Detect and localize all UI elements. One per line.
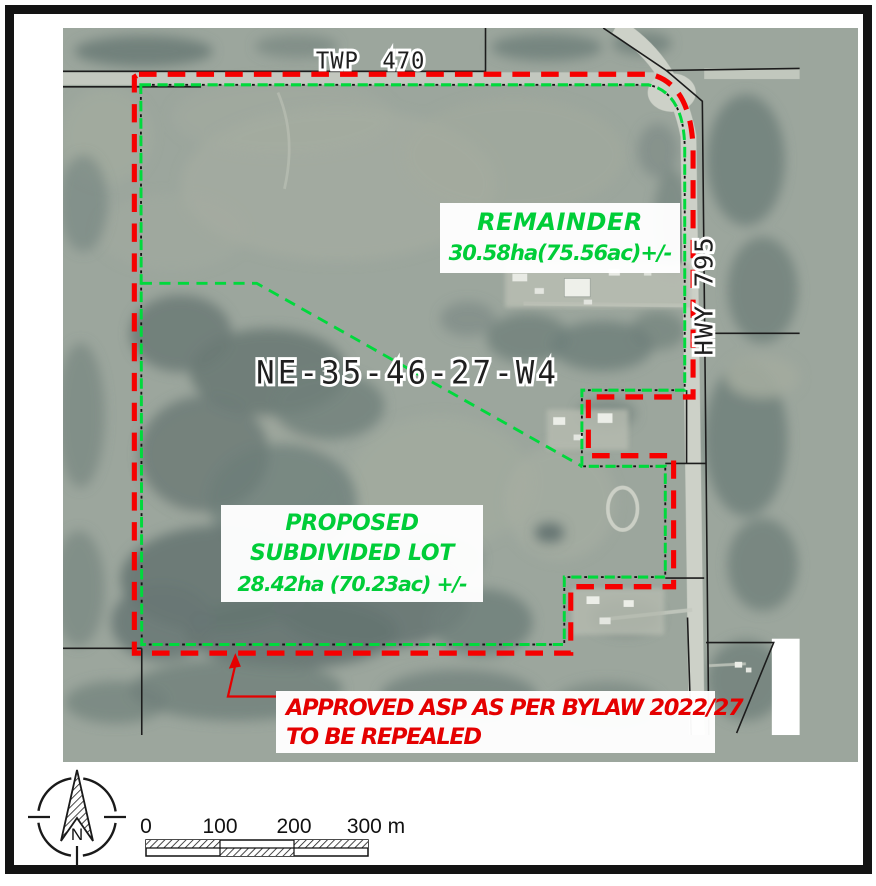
scale-seg-1 xyxy=(146,840,220,848)
scale-seg-2 xyxy=(294,840,368,848)
township-road-label: TWP 470 xyxy=(316,48,425,74)
road-intersection xyxy=(648,73,696,112)
remainder-label: REMAINDER 30.58ha(75.56ac)+/- xyxy=(440,203,680,273)
quarter-section-label: NE-35-46-27-W4 xyxy=(256,355,559,392)
scale-tick-200: 200 xyxy=(276,815,311,838)
scale-tick-100: 100 xyxy=(202,815,237,838)
scale-tick-0: 0 xyxy=(140,815,152,838)
proposed-line1: PROPOSED xyxy=(221,509,483,539)
north-arrow: N xyxy=(28,770,126,866)
scale-bar: 0 100 200 300 m xyxy=(140,815,405,856)
repeal-note: APPROVED ASP AS PER BYLAW 2022/27 TO BE … xyxy=(276,691,715,753)
proposed-area: 28.42ha (70.23ac) +/- xyxy=(221,569,483,599)
highway-label: HWY 795 xyxy=(690,236,719,356)
legend-strip: N 0 100 200 300 m xyxy=(13,762,583,866)
photo-void-corner xyxy=(772,639,800,735)
plan-drawing: TWP 470 NE-35-46-27-W4 HWY 795 xyxy=(63,28,858,762)
repeal-note-line1: APPROVED ASP AS PER BYLAW 2022/27 xyxy=(286,694,715,723)
aerial-photo: TWP 470 NE-35-46-27-W4 HWY 795 REMAINDER… xyxy=(63,28,858,762)
remainder-area: 30.58ha(75.56ac)+/- xyxy=(440,238,680,268)
plan-page: TWP 470 NE-35-46-27-W4 HWY 795 REMAINDER… xyxy=(0,0,876,886)
scale-tick-300: 300 m xyxy=(347,815,405,838)
scale-seg-3 xyxy=(220,848,294,856)
remainder-title: REMAINDER xyxy=(440,206,680,238)
north-label: N xyxy=(71,825,83,844)
proposed-line2: SUBDIVIDED LOT xyxy=(221,539,483,569)
proposed-lot-label: PROPOSED SUBDIVIDED LOT 28.42ha (70.23ac… xyxy=(221,505,483,602)
repeal-note-line2: TO BE REPEALED xyxy=(286,723,715,752)
